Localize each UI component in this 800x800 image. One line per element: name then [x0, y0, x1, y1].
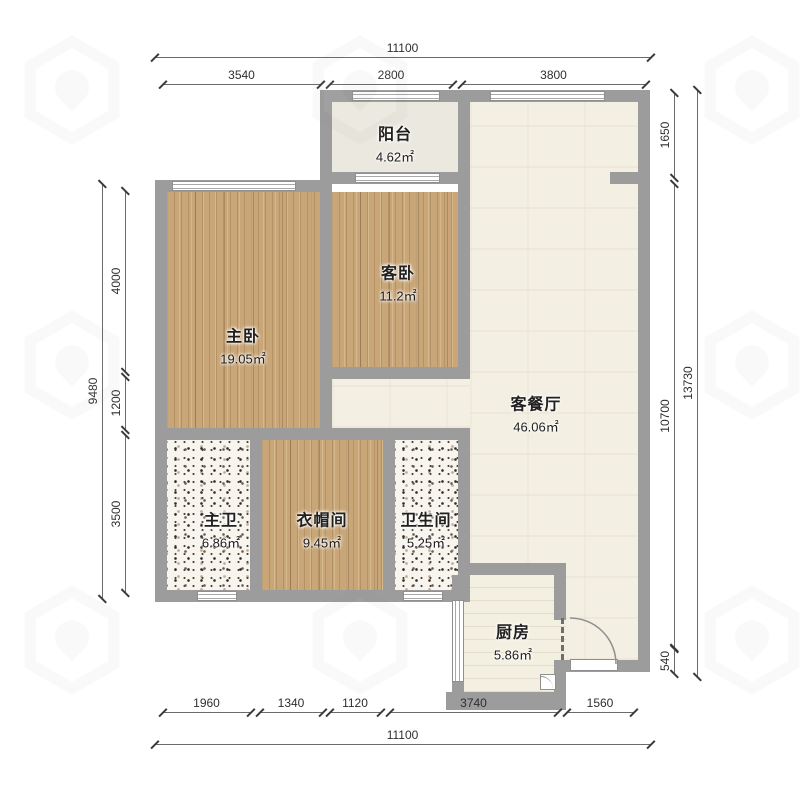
room-label-cloakroom: 衣帽间 9.45㎡	[296, 507, 347, 552]
dim-bottom-seg-1: 1960	[163, 712, 250, 713]
dim-bottom-seg-3: 1120	[330, 712, 380, 713]
room-area: 9.45㎡	[296, 533, 347, 552]
room-name: 主卧	[220, 323, 266, 347]
master-bedroom-floor	[167, 192, 320, 428]
dim-bottom-seg-2: 1340	[260, 712, 322, 713]
dim-top-seg-3: 3800	[462, 84, 645, 85]
room-name: 主卫	[202, 507, 240, 531]
room-label-balcony: 阳台 4.62㎡	[376, 121, 414, 166]
room-area: 6.86㎡	[202, 533, 240, 552]
dim-left-seg-3: 3500	[125, 435, 126, 592]
watermark-logo	[17, 35, 127, 145]
dim-left-total: 9480	[102, 184, 103, 598]
dim-left-seg-1: 4000	[125, 191, 126, 371]
dim-right-seg-3: 540	[674, 649, 675, 673]
room-area: 5.25㎡	[400, 533, 451, 552]
dim-top-seg-1: 3540	[163, 84, 320, 85]
wall-guest-bedroom-bottom	[320, 367, 470, 379]
watermark-logo	[697, 585, 800, 695]
room-label-kitchen: 厨房 5.86㎡	[494, 619, 532, 664]
room-label-bathroom: 卫生间 5.25㎡	[400, 507, 451, 552]
room-area: 19.05㎡	[220, 349, 266, 368]
balcony-top-window	[352, 91, 440, 101]
bathroom-window	[403, 591, 443, 601]
room-area: 4.62㎡	[376, 147, 414, 166]
balcony-sliding-window	[355, 173, 440, 183]
master-bath-window	[197, 591, 237, 601]
wall-right-stub	[610, 172, 650, 184]
wall-kitchen-right-stub	[554, 563, 566, 620]
dim-bottom-seg-4: 3740	[390, 712, 557, 713]
dim-right-seg-1: 1650	[674, 93, 675, 177]
entry-door-leaf	[570, 659, 618, 671]
room-area: 11.2㎡	[379, 286, 416, 305]
wall-guest-bedroom-right	[458, 90, 470, 379]
room-name: 客餐厅	[510, 391, 561, 415]
hallway-floor	[332, 379, 470, 428]
room-name: 阳台	[376, 121, 414, 145]
room-name: 厨房	[494, 619, 532, 643]
room-label-master-bath: 主卫 6.86㎡	[202, 507, 240, 552]
room-name: 客卧	[379, 260, 416, 284]
dim-bottom-total: 11100	[155, 744, 650, 745]
kitchen-opening-dashed	[561, 618, 564, 660]
room-label-guest-bedroom: 客卧 11.2㎡	[379, 260, 416, 305]
floor-plan: 阳台 4.62㎡ 客卧 11.2㎡ 主卧 19.05㎡ 客餐厅 46.06㎡ 主…	[0, 0, 800, 800]
room-label-living-dining: 客餐厅 46.06㎡	[510, 391, 561, 436]
room-name: 衣帽间	[296, 507, 347, 531]
wall-cloakroom-bathroom	[383, 428, 395, 602]
room-name: 卫生间	[400, 507, 451, 531]
dim-right-seg-2: 10700	[674, 184, 675, 647]
dim-left-seg-2: 1200	[125, 377, 126, 429]
living-top-window	[490, 91, 605, 101]
dim-top-total: 11100	[155, 57, 650, 58]
kitchen-flue-symbol	[540, 674, 556, 690]
watermark-logo	[697, 35, 800, 145]
dim-bottom-seg-5: 1560	[567, 712, 633, 713]
wall-masterbath-cloakroom	[250, 428, 262, 602]
watermark-logo	[17, 585, 127, 695]
dim-top-seg-2: 2800	[330, 84, 452, 85]
dim-right-total: 13730	[697, 90, 698, 676]
master-bedroom-window	[172, 181, 296, 191]
room-area: 46.06㎡	[510, 417, 561, 436]
room-area: 5.86㎡	[494, 645, 532, 664]
wall-left	[155, 180, 167, 602]
wall-bedroom-divider	[320, 180, 332, 440]
wall-kitchen-top	[458, 563, 566, 575]
watermark-logo	[697, 310, 800, 420]
kitchen-window	[452, 600, 464, 682]
room-label-master-bedroom: 主卧 19.05㎡	[220, 323, 266, 368]
wall-hall-bottom	[155, 428, 470, 440]
